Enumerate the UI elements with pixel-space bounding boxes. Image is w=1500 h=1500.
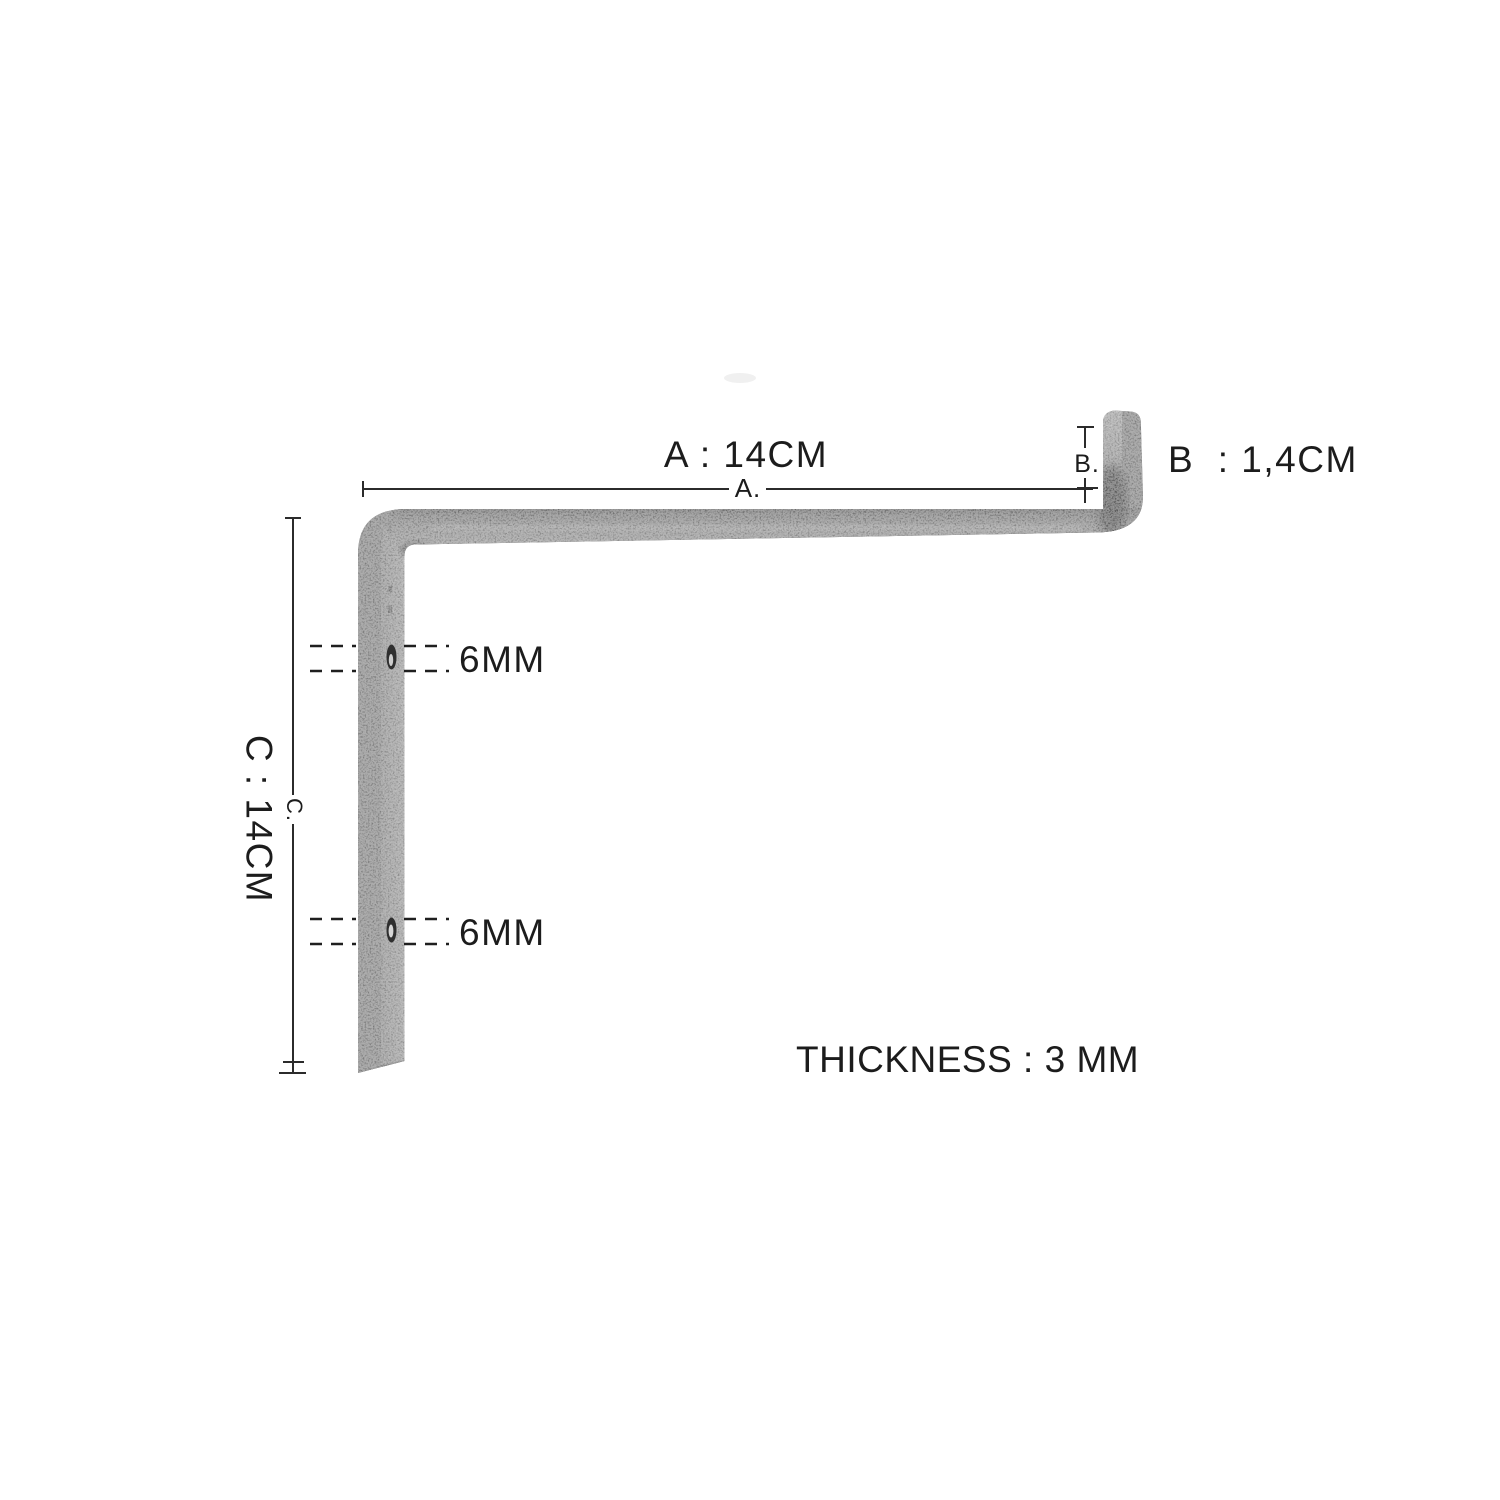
background-smudge (724, 373, 756, 383)
dim-a-line-letter: A. (735, 475, 762, 501)
dim-b-value-label: B : 1,4CM (1168, 441, 1358, 478)
metal-grain-light (358, 411, 1143, 1074)
hole-top-size-label: 6MM (459, 641, 546, 678)
dim-c-value-label: C : 14CM (241, 735, 278, 903)
hole-bottom-size-label: 6MM (459, 914, 546, 951)
thickness-label: THICKNESS : 3 MM (796, 1041, 1139, 1078)
dim-a-value-label: A : 14CM (664, 436, 828, 473)
dimension-diagram: A : 14CM A. B : 1,4CM B. C : 14CM C. 6MM… (0, 0, 1500, 1500)
dim-line-a (363, 481, 1093, 497)
screw-hole-top (387, 645, 397, 670)
bracket-shading (358, 411, 1152, 1074)
bracket-illustration (358, 411, 1152, 1074)
dim-line-c (279, 518, 306, 1073)
bracket-diagram-graphics (0, 0, 1500, 1500)
screw-hole-bottom (387, 918, 397, 943)
dim-c-line-letter: C. (283, 798, 305, 822)
dim-b-line-letter: B. (1074, 452, 1100, 477)
